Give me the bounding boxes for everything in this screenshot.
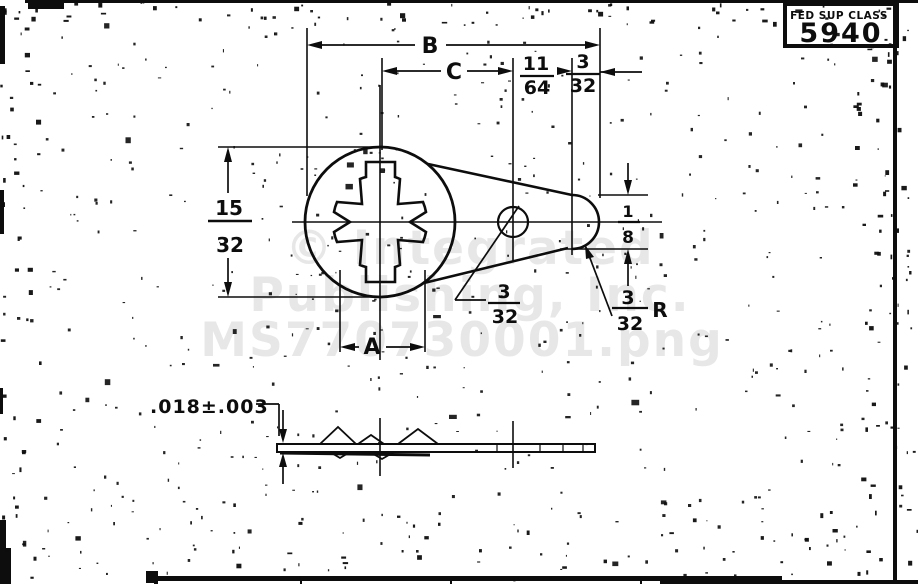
dim-11-64-numerator: 11	[523, 53, 549, 75]
dim-radius-numerator: 3	[621, 287, 634, 309]
dim-C-label: C	[446, 60, 462, 85]
dim-radius-denominator: 32	[617, 313, 643, 335]
dim-15-32-denominator: 32	[216, 233, 244, 257]
engineering-drawing-sheet: © Integrated Publishing, Inc. MS77073000…	[0, 0, 918, 584]
dim-hole-denominator: 32	[492, 306, 518, 328]
dim-1-8-denominator: 8	[622, 228, 634, 248]
dim-A-label: A	[363, 335, 380, 360]
dim-thickness-label: .018±.003	[150, 396, 269, 418]
dim-hole-numerator: 3	[497, 281, 510, 303]
dim-3-32-top-denominator: 32	[570, 75, 596, 97]
dim-15-32-numerator: 15	[215, 196, 243, 220]
dim-1-8-numerator: 1	[622, 202, 633, 221]
watermark-line3: MS770730001.png	[200, 313, 724, 368]
fed-sup-class-number: 5940	[799, 18, 882, 49]
strip-shadow	[280, 453, 430, 455]
dim-radius-suffix: R	[652, 298, 667, 322]
dim-3-32-top-numerator: 3	[576, 51, 589, 73]
dim-11-64-denominator: 64	[524, 77, 550, 99]
